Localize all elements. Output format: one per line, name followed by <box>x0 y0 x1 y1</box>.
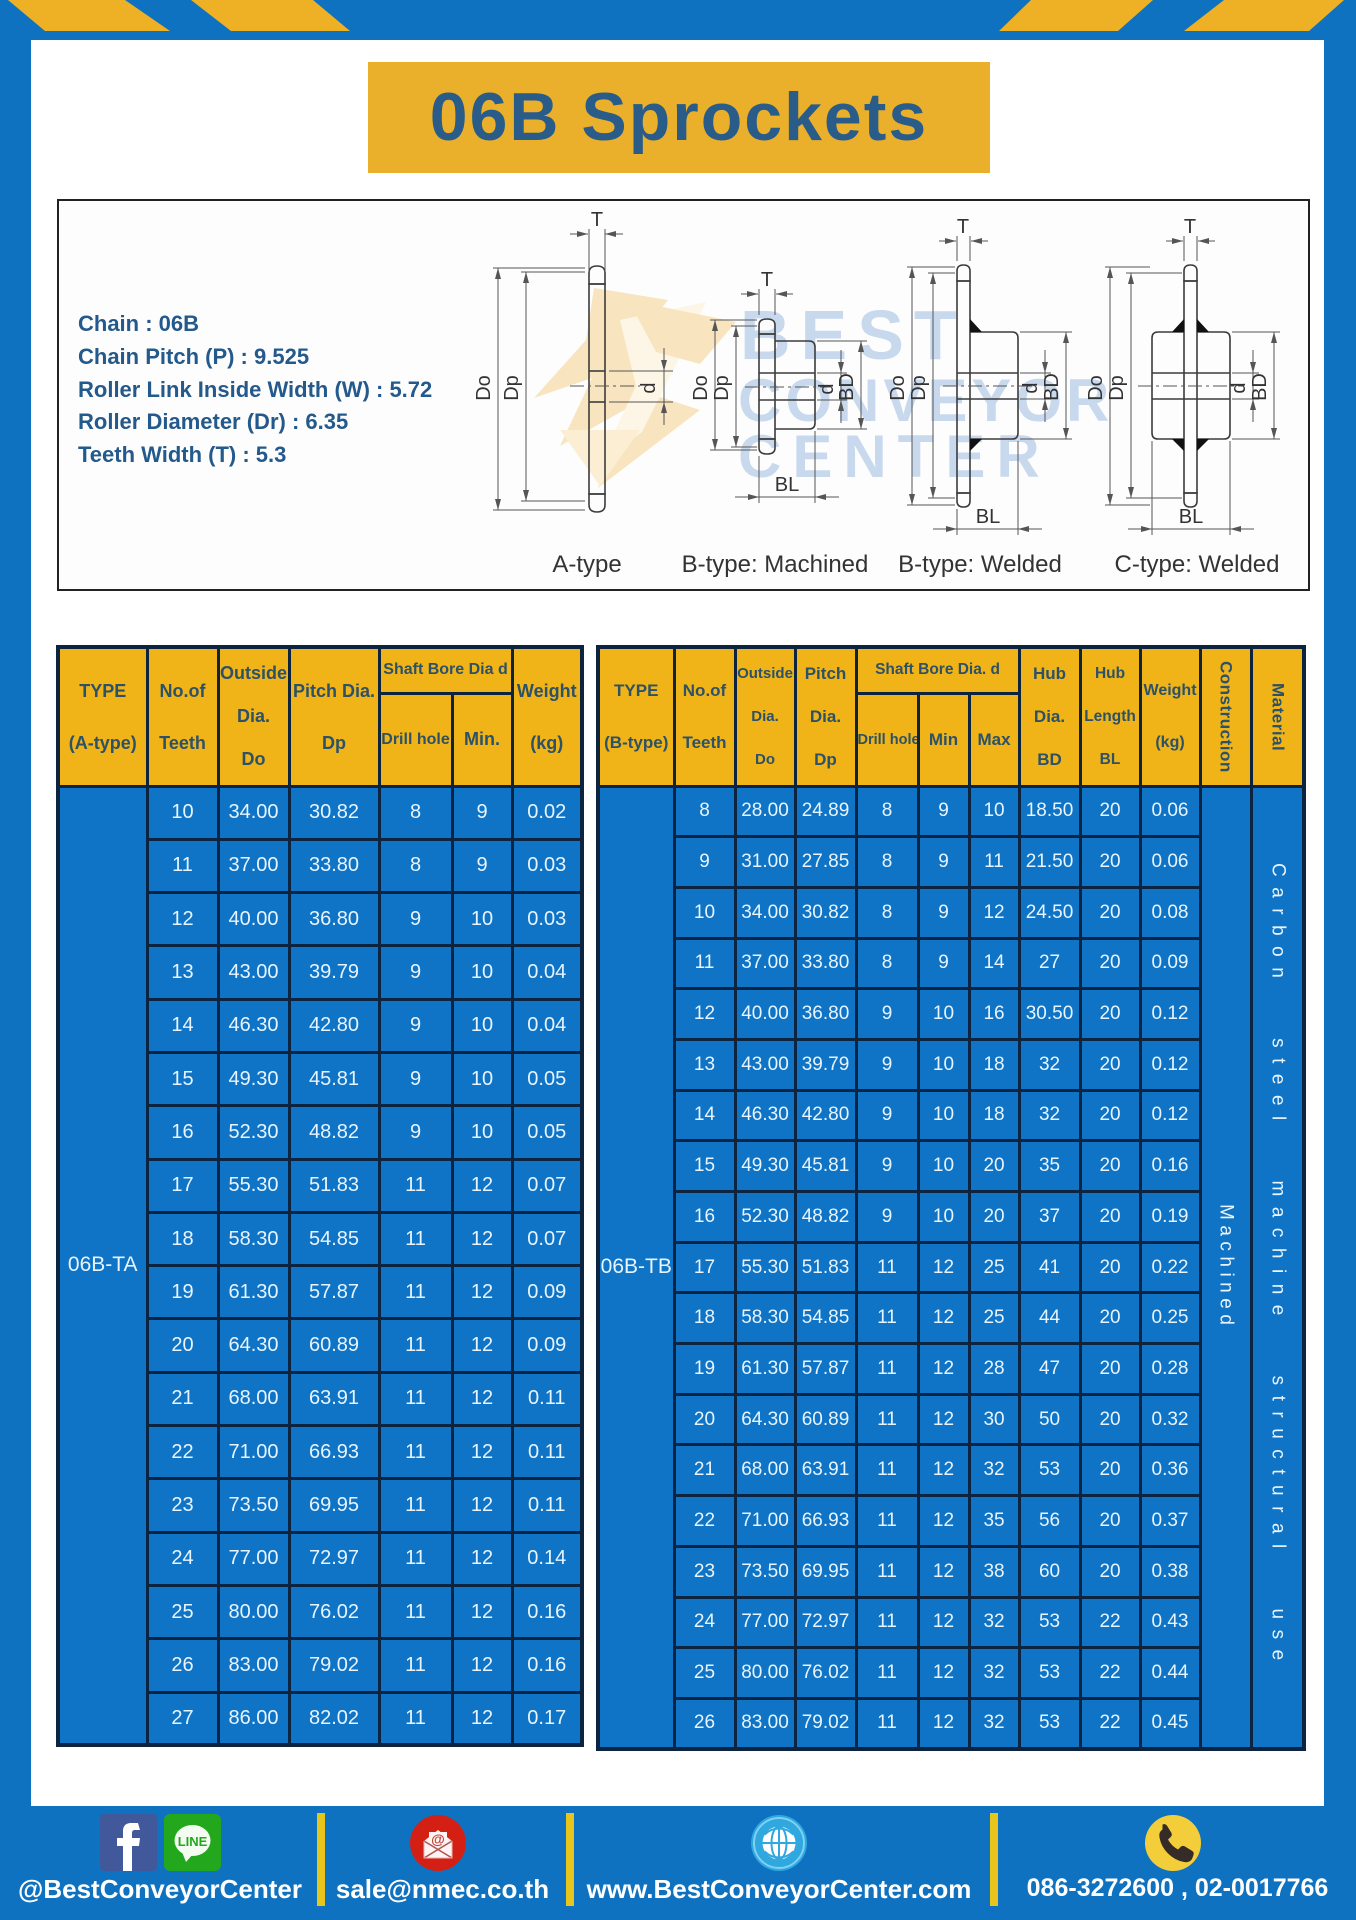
svg-text:Chain : 06B: Chain : 06B <box>78 311 199 336</box>
svg-text:B-type: Welded: B-type: Welded <box>898 551 1062 578</box>
svg-text:BD: BD <box>1249 373 1271 401</box>
svg-text:T: T <box>1184 216 1196 238</box>
svg-text:BD: BD <box>836 373 858 401</box>
svg-text:Roller Diameter (Dr) : 6.35: Roller Diameter (Dr) : 6.35 <box>78 409 348 434</box>
svg-text:d: d <box>1228 382 1250 393</box>
svg-text:A-type: A-type <box>552 551 621 578</box>
svg-text:C-type: Welded: C-type: Welded <box>1115 551 1280 578</box>
svg-text:d: d <box>1020 382 1042 393</box>
svg-text:Do: Do <box>887 375 909 401</box>
svg-text:BL: BL <box>1179 506 1203 528</box>
svg-text:BL: BL <box>775 474 799 496</box>
svg-text:T: T <box>591 209 603 231</box>
svg-text:Do: Do <box>690 375 712 401</box>
svg-text:BL: BL <box>976 506 1000 528</box>
svg-text:Do: Do <box>473 375 495 401</box>
svg-text:d: d <box>638 382 660 393</box>
svg-text:B-type: Machined: B-type: Machined <box>682 551 869 578</box>
svg-text:Dp: Dp <box>908 375 930 401</box>
svg-text:T: T <box>761 269 773 291</box>
svg-text:Dp: Dp <box>501 375 523 401</box>
svg-text:Roller Link Inside Width (W): Roller Link Inside Width (W) : 5.72 <box>78 377 432 402</box>
svg-text:Teeth Width (T) : 5.3: Teeth Width (T) : 5.3 <box>78 442 286 467</box>
svg-text:T: T <box>957 216 969 238</box>
svg-text:Dp: Dp <box>711 375 733 401</box>
svg-text:Chain Pitch (P) : 9.525: Chain Pitch (P) : 9.525 <box>78 344 309 369</box>
svg-text:@: @ <box>431 1831 445 1847</box>
svg-text:Do: Do <box>1085 375 1107 401</box>
svg-text:BD: BD <box>1041 373 1063 401</box>
svg-text:Dp: Dp <box>1106 375 1128 401</box>
svg-text:LINE: LINE <box>178 1834 208 1849</box>
svg-text:d: d <box>816 383 838 394</box>
